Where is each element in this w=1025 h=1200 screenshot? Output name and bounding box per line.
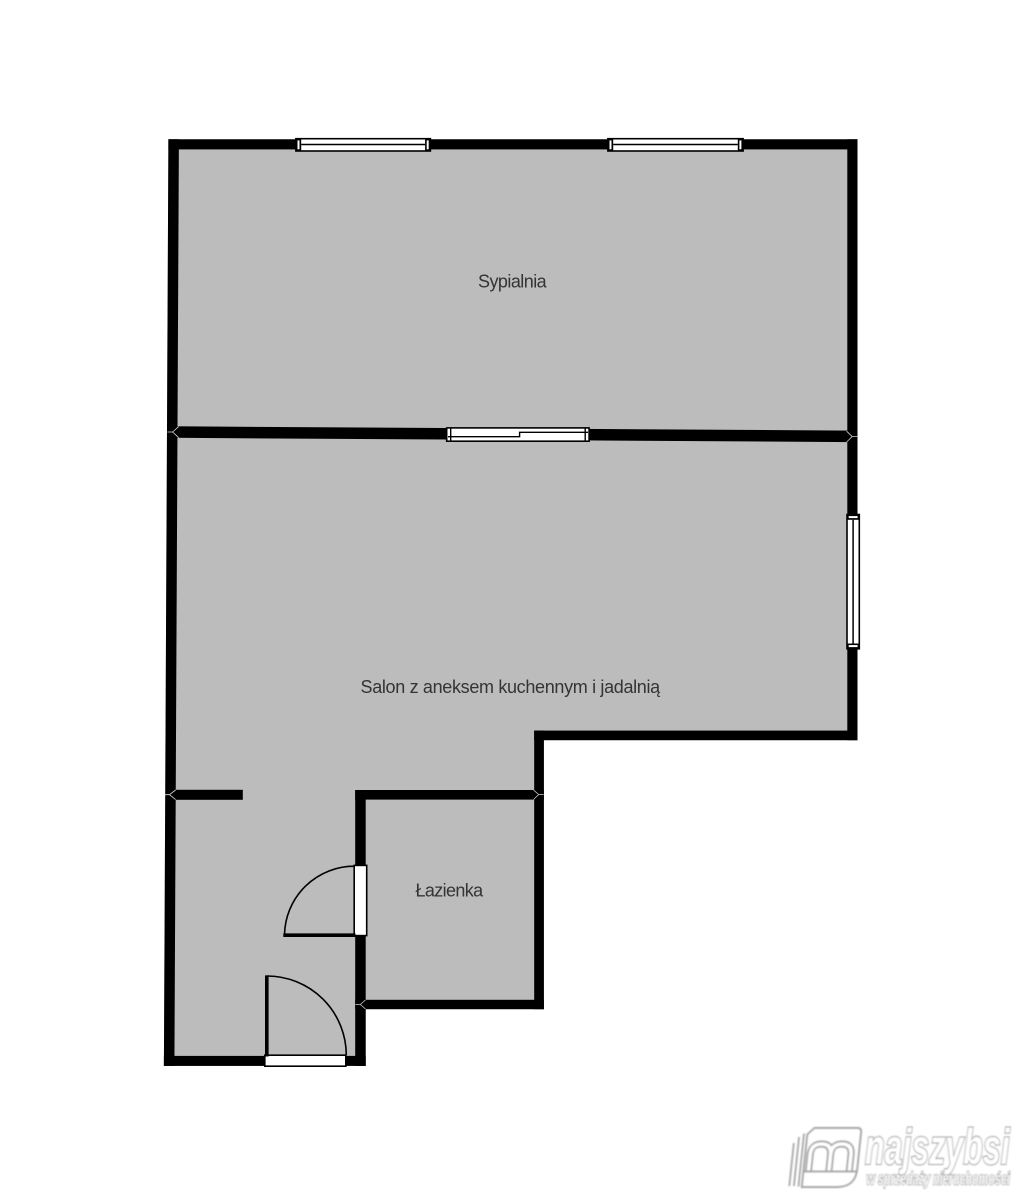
svg-text:Salon z aneksem kuchennym i ja: Salon z aneksem kuchennym i jadalnią <box>361 677 662 697</box>
svg-text:Sypialnia: Sypialnia <box>478 272 548 292</box>
svg-text:Łazienka: Łazienka <box>415 880 484 900</box>
svg-text:najszybsi: najszybsi <box>865 1119 1011 1175</box>
svg-text:w sprzedaży nieruchomości: w sprzedaży nieruchomości <box>867 1170 1011 1189</box>
